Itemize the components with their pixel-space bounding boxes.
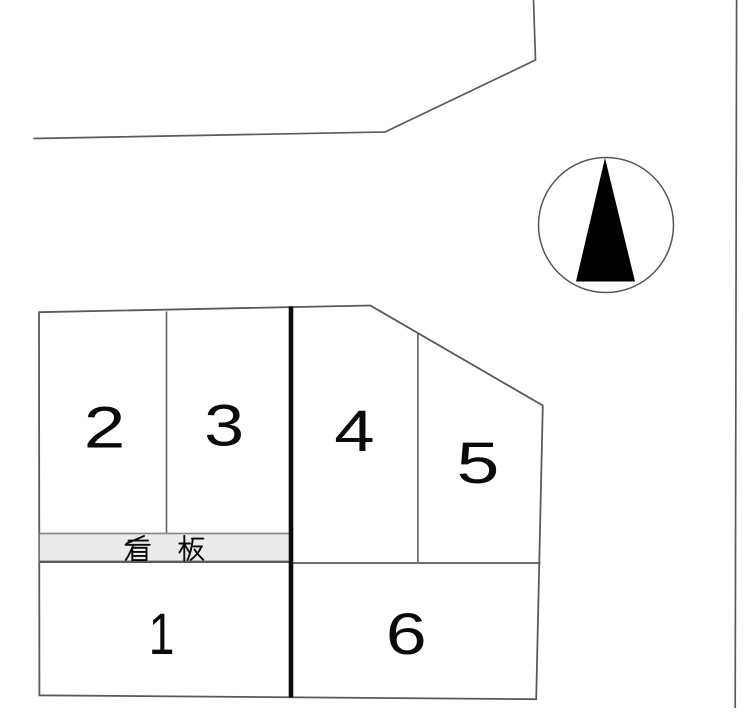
svg-text:3: 3: [204, 393, 244, 458]
svg-text:2: 2: [84, 396, 126, 461]
svg-text:1: 1: [149, 602, 175, 667]
svg-text:4: 4: [334, 399, 374, 463]
svg-text:5: 5: [457, 431, 500, 496]
svg-text:6: 6: [386, 602, 427, 667]
